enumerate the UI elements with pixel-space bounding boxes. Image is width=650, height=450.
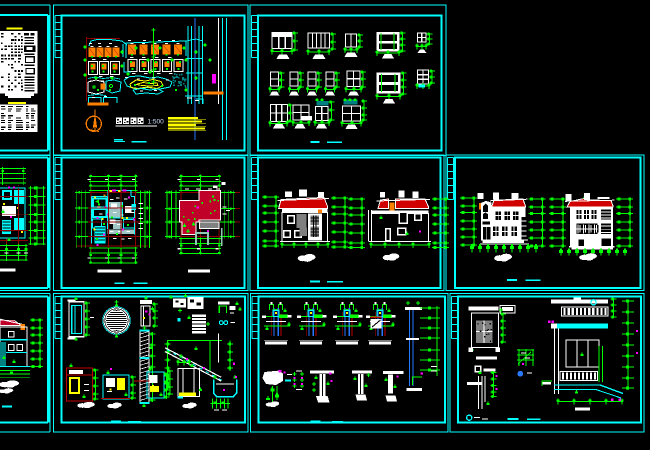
- svg-text:1:500: 1:500: [148, 119, 165, 126]
